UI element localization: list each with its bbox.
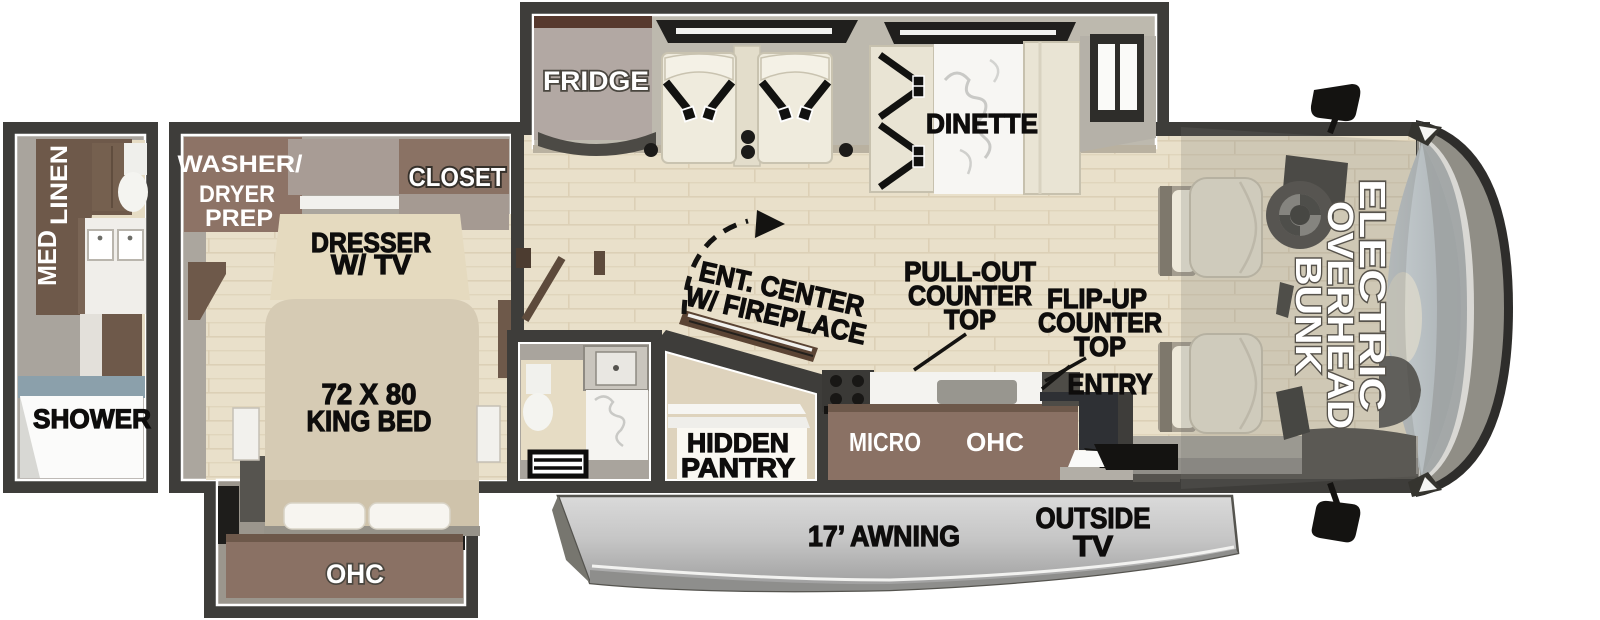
- svg-text:TV: TV: [1073, 531, 1114, 563]
- svg-text:TOP: TOP: [944, 304, 996, 335]
- svg-text:MED: MED: [32, 230, 62, 286]
- svg-text:CLOSET: CLOSET: [409, 162, 506, 192]
- svg-text:KING BED: KING BED: [307, 406, 432, 438]
- svg-text:PANTRY: PANTRY: [681, 453, 795, 483]
- svg-text:MICRO: MICRO: [849, 427, 921, 457]
- svg-text:ENTRY: ENTRY: [1068, 369, 1153, 401]
- svg-text:17’ AWNING: 17’ AWNING: [808, 521, 960, 553]
- svg-text:TOP: TOP: [1074, 331, 1126, 362]
- svg-text:DRYER: DRYER: [199, 181, 275, 208]
- svg-text:BUNK: BUNK: [1288, 256, 1329, 374]
- svg-text:SHOWER: SHOWER: [33, 404, 151, 434]
- svg-text:LINEN: LINEN: [46, 145, 73, 225]
- svg-text:WASHER/: WASHER/: [178, 151, 303, 178]
- svg-text:W/ TV: W/ TV: [331, 249, 411, 280]
- svg-text:OHC: OHC: [966, 427, 1024, 457]
- svg-text:DINETTE: DINETTE: [926, 108, 1038, 139]
- svg-text:OHC: OHC: [326, 559, 384, 589]
- svg-text:PREP: PREP: [205, 205, 273, 232]
- svg-text:FRIDGE: FRIDGE: [543, 66, 649, 96]
